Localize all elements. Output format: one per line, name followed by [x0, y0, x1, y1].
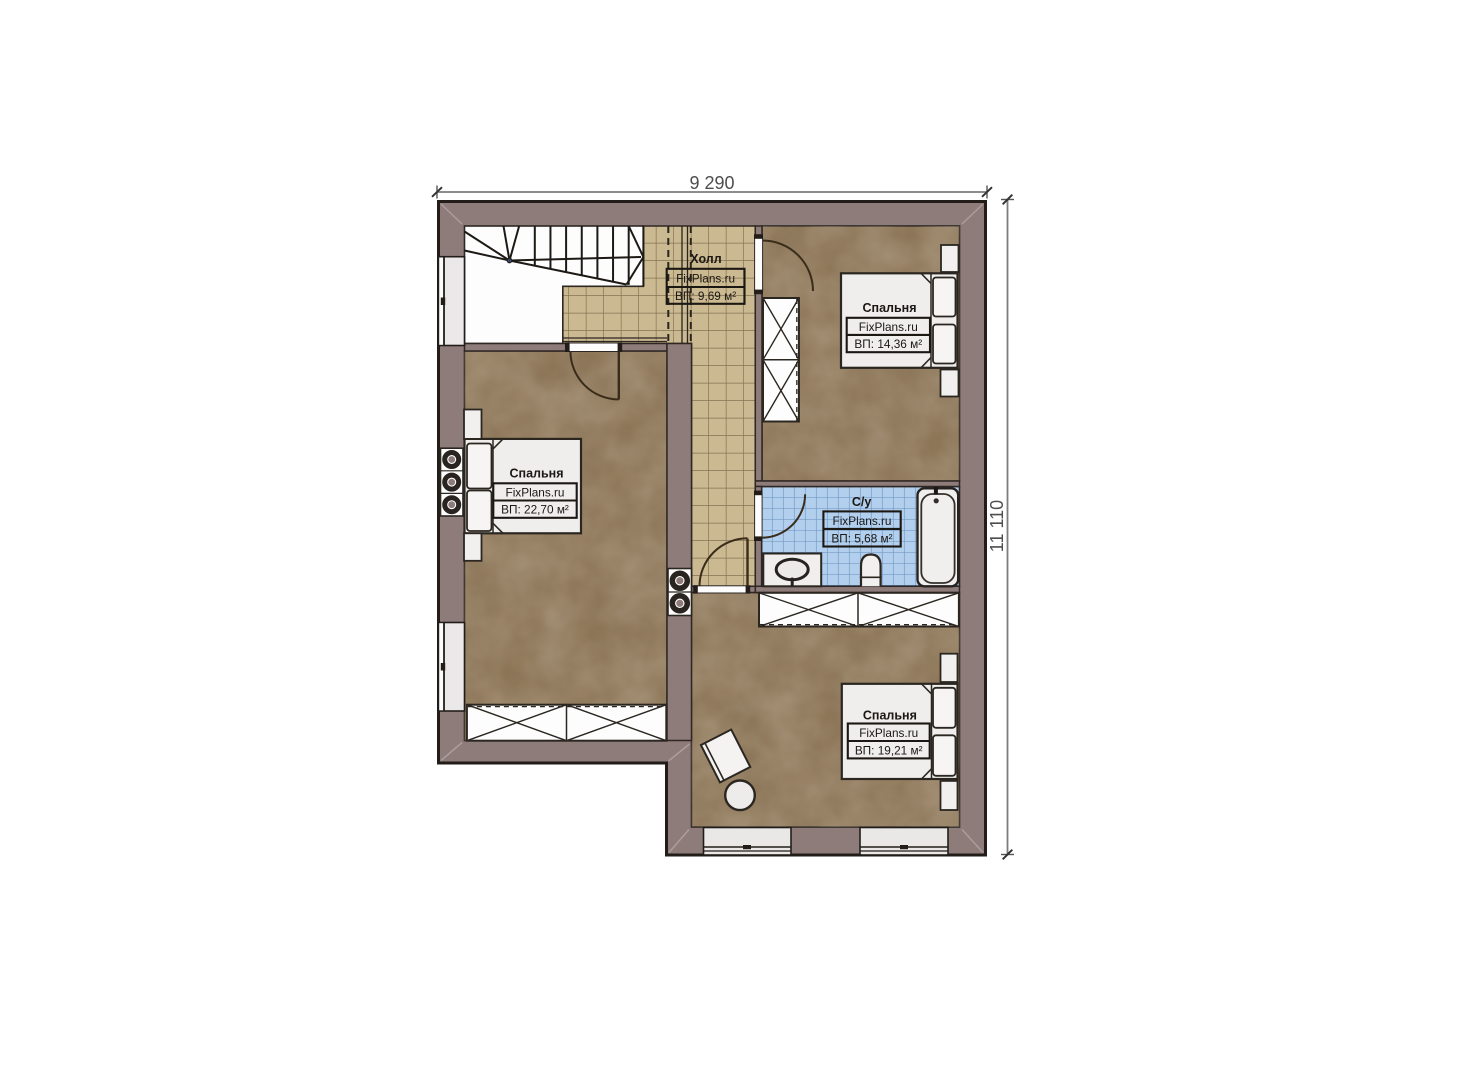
svg-text:ВП: 5,68 м²: ВП: 5,68 м² — [831, 532, 892, 546]
svg-text:FixPlans.ru: FixPlans.ru — [832, 514, 891, 528]
svg-text:FixPlans.ru: FixPlans.ru — [505, 486, 564, 500]
svg-text:11 110: 11 110 — [987, 500, 1007, 552]
svg-text:FixPlans.ru: FixPlans.ru — [859, 320, 918, 334]
svg-text:ВП: 22,70 м²: ВП: 22,70 м² — [501, 503, 569, 517]
svg-text:ВП: 9,69 м²: ВП: 9,69 м² — [675, 289, 736, 303]
svg-text:FixPlans.ru: FixPlans.ru — [676, 272, 735, 286]
svg-text:С/у: С/у — [852, 495, 872, 509]
svg-text:ВП: 14,36 м²: ВП: 14,36 м² — [854, 337, 922, 351]
svg-text:ВП: 19,21 м²: ВП: 19,21 м² — [855, 744, 923, 758]
svg-text:Спальня: Спальня — [863, 301, 917, 315]
svg-text:Холл: Холл — [690, 252, 721, 266]
svg-text:9 290: 9 290 — [689, 173, 734, 193]
svg-text:Спальня: Спальня — [863, 709, 917, 723]
svg-text:FixPlans.ru: FixPlans.ru — [859, 726, 918, 740]
svg-text:Спальня: Спальня — [510, 467, 564, 481]
